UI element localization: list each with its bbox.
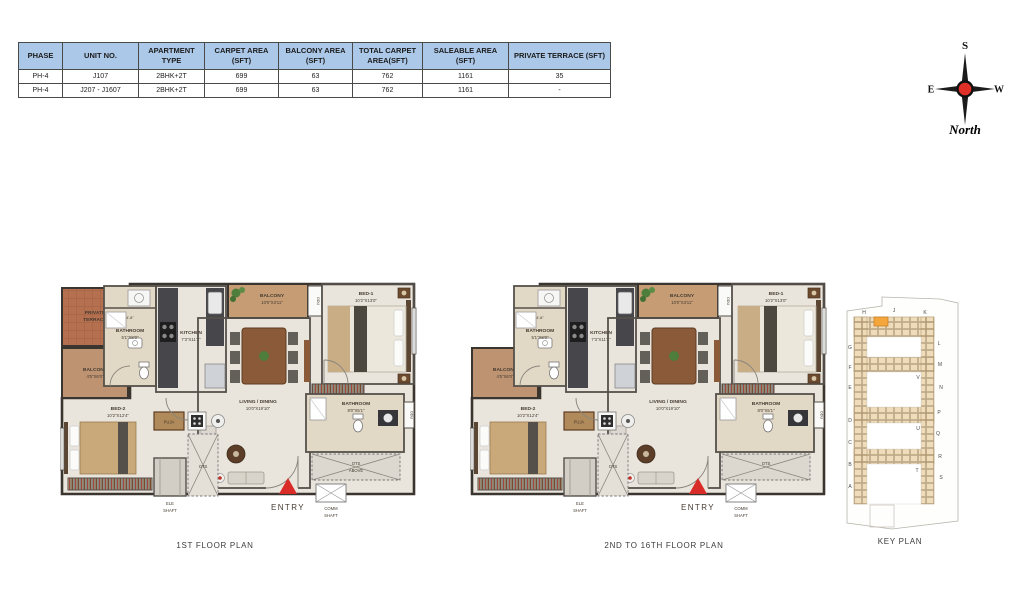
- cell: -: [509, 83, 611, 97]
- cell: 762: [353, 83, 423, 97]
- comm-shaft: COMM SHAFT: [726, 484, 756, 518]
- svg-text:PUJA: PUJA: [164, 420, 175, 425]
- svg-text:OTS: OTS: [609, 464, 618, 469]
- bathroom-bottom: BATHROOM 8'0"X5'1": [306, 394, 404, 452]
- svg-text:4'-8": 4'-8": [126, 316, 134, 320]
- svg-text:ODU: ODU: [820, 411, 824, 420]
- col-header-phase: PHASE: [19, 43, 63, 70]
- cell: PH-4: [19, 83, 63, 97]
- col-header-unit-no: UNIT NO.: [63, 43, 139, 70]
- col-header-saleable-area: SALEABLE AREA (SFT): [423, 43, 509, 70]
- highlighted-unit: [874, 317, 888, 326]
- chair: [698, 370, 708, 383]
- bathroom-bottom: BATHROOM 8'0"X5'1": [716, 394, 814, 452]
- svg-text:ELE: ELE: [576, 501, 584, 506]
- chair: [698, 332, 708, 345]
- ots-shaft: OTS: [598, 434, 628, 496]
- tower-label: L: [938, 341, 941, 347]
- ele-shaft: ELE SHAFT: [154, 458, 186, 513]
- ots-shaft: OTS: [188, 434, 218, 496]
- chair: [698, 351, 708, 364]
- puja-room: PUJA: [564, 412, 594, 430]
- svg-text:BATHROOM: BATHROOM: [752, 401, 780, 407]
- svg-text:10'0"X3'11": 10'0"X3'11": [671, 300, 693, 305]
- svg-text:ABOVE: ABOVE: [349, 468, 364, 473]
- hob: [570, 322, 586, 342]
- odu-box-top: ODU: [308, 286, 322, 316]
- tower-label: G: [848, 345, 852, 351]
- svg-text:BATHROOM: BATHROOM: [526, 328, 554, 334]
- svg-text:BATHROOM: BATHROOM: [116, 328, 144, 334]
- cell: J207 - J1607: [63, 83, 139, 97]
- chair: [640, 332, 650, 345]
- cell: 2BHK+2T: [139, 83, 205, 97]
- tower-label: U: [916, 426, 920, 432]
- cell: 1161: [423, 83, 509, 97]
- bed1-headboard: [406, 300, 411, 372]
- svg-text:ODU: ODU: [316, 297, 320, 306]
- toilet: [139, 362, 149, 367]
- key-plan: H J K G F E D C B A L M N P Q R S V U T: [838, 294, 962, 536]
- entry-label: ENTRY: [681, 503, 715, 512]
- balcony-top: BALCONY 10'0"X3'11": [638, 284, 718, 318]
- chair: [230, 332, 240, 345]
- svg-text:10'0"X19'10": 10'0"X19'10": [656, 406, 681, 411]
- puja-room: PUJA: [154, 412, 184, 430]
- svg-text:OTS: OTS: [762, 461, 771, 466]
- svg-text:BED-1: BED-1: [769, 291, 784, 297]
- tv-console: [714, 340, 720, 382]
- cell: 699: [205, 69, 279, 83]
- bed2-headboard: [474, 422, 478, 474]
- washer: [538, 290, 560, 306]
- svg-text:LIVING / DINING: LIVING / DINING: [239, 399, 277, 405]
- svg-text:ODU: ODU: [726, 297, 730, 306]
- bed2-headboard: [64, 422, 68, 474]
- bathroom-top: 4'-8" BATHROOM 5'1"X8'0": [514, 286, 566, 386]
- compass-north-label: North: [948, 122, 981, 137]
- svg-text:BATHROOM: BATHROOM: [342, 401, 370, 407]
- svg-text:COMM: COMM: [324, 506, 338, 511]
- comm-shaft: COMM SHAFT: [316, 484, 346, 518]
- svg-text:8'0"X5'1": 8'0"X5'1": [347, 408, 365, 413]
- chair: [640, 370, 650, 383]
- col-header-carpet-area: CARPET AREA (SFT): [205, 43, 279, 70]
- floor-plan-sheet: PHASE UNIT NO. APARTMENT TYPE CARPET ARE…: [0, 0, 1024, 591]
- svg-text:BALCONY: BALCONY: [670, 293, 695, 299]
- cell: J107: [63, 69, 139, 83]
- svg-text:COMM: COMM: [734, 506, 748, 511]
- svg-text:KITCHEN: KITCHEN: [590, 330, 612, 336]
- svg-text:LIVING / DINING: LIVING / DINING: [649, 399, 687, 405]
- svg-text:SHAFT: SHAFT: [163, 508, 177, 513]
- svg-text:10'0"X19'10": 10'0"X19'10": [246, 406, 271, 411]
- tower-label: H: [862, 310, 866, 316]
- cell: 2BHK+2T: [139, 69, 205, 83]
- chair: [288, 351, 298, 364]
- sink: [618, 292, 632, 314]
- chair: [230, 351, 240, 364]
- plant: [669, 351, 679, 361]
- svg-text:10'2"X13'0": 10'2"X13'0": [355, 298, 377, 303]
- col-header-balcony-area: BALCONY AREA (SFT): [279, 43, 353, 70]
- svg-text:ELE: ELE: [166, 501, 174, 506]
- key-plan-title: KEY PLAN: [840, 537, 960, 546]
- floor-plan-1-container: PRIVATE TERRACE BALCONY 4'5"X6'0" 4'-8" …: [60, 282, 420, 532]
- cell: 762: [353, 69, 423, 83]
- svg-text:BED-2: BED-2: [521, 406, 536, 412]
- table-row: PH-4 J207 - J1607 2BHK+2T 699 63 762 116…: [19, 83, 611, 97]
- fridge: [205, 364, 225, 388]
- svg-text:PRIVATE: PRIVATE: [85, 310, 106, 316]
- svg-text:4'-8": 4'-8": [536, 316, 544, 320]
- bathroom-top: 4'-8" BATHROOM 5'1"X8'0": [104, 286, 156, 386]
- chair: [640, 351, 650, 364]
- table-row: PH-4 J107 2BHK+2T 699 63 762 1161 35: [19, 69, 611, 83]
- cell: 699: [205, 83, 279, 97]
- washer: [128, 290, 150, 306]
- plan-2-title: 2ND TO 16TH FLOOR PLAN: [564, 541, 764, 550]
- tower-label: C: [848, 440, 852, 446]
- odu-box-right: ODU: [814, 402, 824, 428]
- svg-text:BED-1: BED-1: [359, 291, 374, 297]
- tower-label: N: [939, 385, 943, 391]
- tower-label: Q: [936, 431, 940, 437]
- hob: [160, 322, 176, 342]
- ele-shaft: ELE SHAFT: [564, 458, 596, 513]
- sink: [208, 292, 222, 314]
- tower-label: R: [938, 454, 942, 460]
- col-header-apartment-type: APARTMENT TYPE: [139, 43, 205, 70]
- tv-console: [304, 340, 310, 382]
- bed1-headboard: [816, 300, 821, 372]
- foyer-items: [598, 412, 635, 430]
- svg-text:10'0"X3'11": 10'0"X3'11": [261, 300, 283, 305]
- tower-label: M: [938, 362, 942, 368]
- svg-text:5'1"X8'0": 5'1"X8'0": [531, 335, 549, 340]
- col-header-private-terrace: PRIVATE TERRACE (SFT): [509, 43, 611, 70]
- cell: 63: [279, 69, 353, 83]
- svg-text:OTS: OTS: [352, 461, 361, 466]
- floor-plan-2-container: BALCONY 4'5"X6'0" 4'-8" BATHROOM 5'1"X8'…: [470, 282, 830, 532]
- fridge: [615, 364, 635, 388]
- chair: [230, 370, 240, 383]
- area-table: PHASE UNIT NO. APARTMENT TYPE CARPET ARE…: [18, 42, 611, 98]
- wardrobe: [478, 478, 562, 490]
- floor-plan-2: BALCONY 4'5"X6'0" 4'-8" BATHROOM 5'1"X8'…: [470, 282, 830, 532]
- compass-center: [958, 82, 973, 97]
- svg-text:SHAFT: SHAFT: [324, 513, 338, 518]
- chair: [288, 370, 298, 383]
- compass-west-label: W: [994, 85, 1004, 96]
- plant: [259, 351, 269, 361]
- svg-text:BED-2: BED-2: [111, 406, 126, 412]
- ots-above-shaft: OTS: [722, 454, 810, 480]
- svg-text:10'2"X13'0": 10'2"X13'0": [765, 298, 787, 303]
- toilet: [763, 414, 773, 419]
- plan-1-title: 1ST FLOOR PLAN: [140, 541, 290, 550]
- floor-plan-1: PRIVATE TERRACE BALCONY 4'5"X6'0" 4'-8" …: [60, 282, 420, 532]
- odu-box-top: ODU: [718, 286, 732, 316]
- toilet: [353, 414, 363, 419]
- wardrobe: [722, 384, 774, 394]
- compass-rose: S E W North: [925, 33, 1005, 137]
- toilet: [549, 362, 559, 367]
- compass-south-label: S: [962, 40, 968, 52]
- svg-text:KITCHEN: KITCHEN: [180, 330, 202, 336]
- tower-label: F: [848, 365, 851, 371]
- compass-east-label: E: [928, 85, 935, 96]
- svg-text:4'5"X6'0": 4'5"X6'0": [496, 374, 514, 379]
- svg-text:10'2"X12'4": 10'2"X12'4": [517, 413, 539, 418]
- svg-text:8'0"X5'1": 8'0"X5'1": [757, 408, 775, 413]
- wardrobe: [312, 384, 364, 394]
- svg-text:5'1"X8'0": 5'1"X8'0": [121, 335, 139, 340]
- svg-text:BALCONY: BALCONY: [260, 293, 285, 299]
- tower-label: D: [848, 418, 852, 424]
- ots-above-shaft: OTS ABOVE: [312, 454, 400, 480]
- cell: 35: [509, 69, 611, 83]
- col-header-total-carpet-area: TOTAL CARPET AREA(SFT): [353, 43, 423, 70]
- odu-box-right: ODU: [404, 402, 414, 428]
- chair: [288, 332, 298, 345]
- svg-text:4'5"X6'0": 4'5"X6'0": [86, 374, 104, 379]
- table-header-row: PHASE UNIT NO. APARTMENT TYPE CARPET ARE…: [19, 43, 611, 70]
- svg-text:OTS: OTS: [199, 464, 208, 469]
- foyer-items: [188, 412, 225, 430]
- cell: 63: [279, 83, 353, 97]
- svg-text:10'2"X12'4": 10'2"X12'4": [107, 413, 129, 418]
- cell: 1161: [423, 69, 509, 83]
- tower-label: T: [915, 468, 918, 474]
- svg-text:SHAFT: SHAFT: [734, 513, 748, 518]
- wardrobe: [68, 478, 152, 490]
- svg-text:SHAFT: SHAFT: [573, 508, 587, 513]
- svg-text:ODU: ODU: [410, 411, 414, 420]
- cell: PH-4: [19, 69, 63, 83]
- svg-text:PUJA: PUJA: [574, 420, 585, 425]
- balcony-top: BALCONY 10'0"X3'11": [228, 284, 308, 318]
- entry-label: ENTRY: [271, 503, 305, 512]
